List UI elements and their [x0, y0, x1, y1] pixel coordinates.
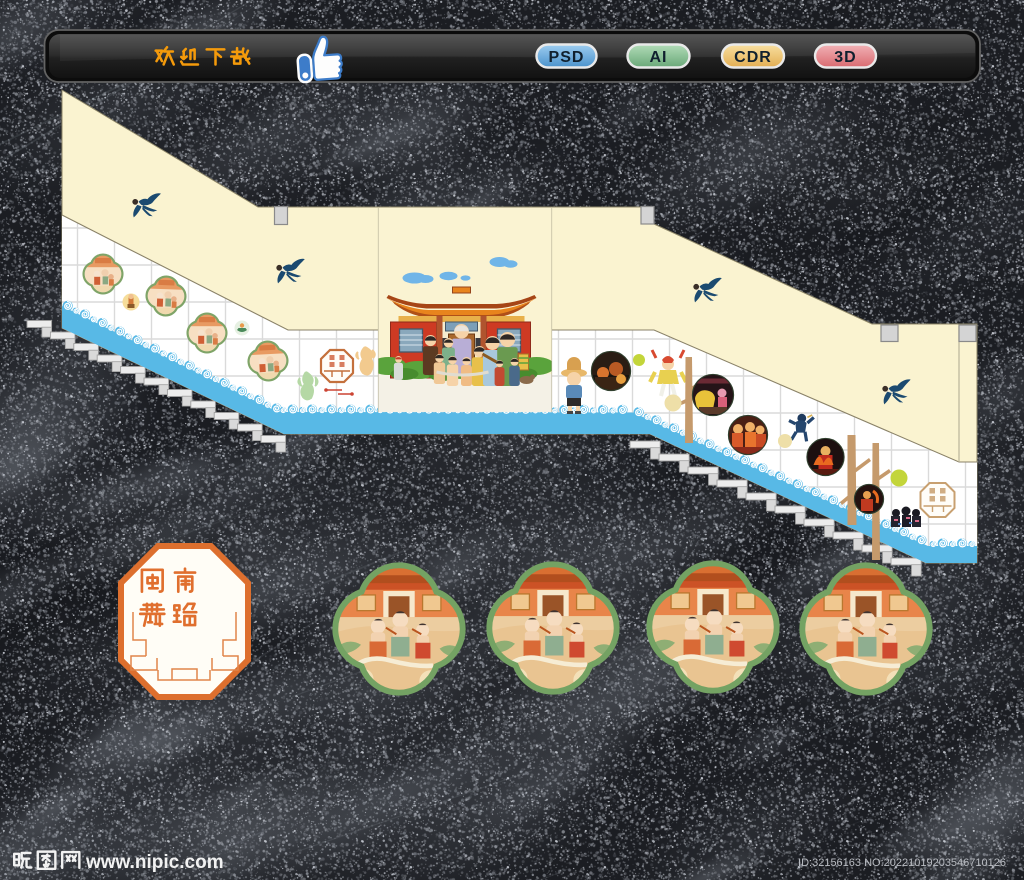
svg-text:3D: 3D: [834, 49, 856, 66]
svg-text:PSD: PSD: [549, 49, 585, 66]
svg-text:CDR: CDR: [734, 49, 772, 66]
svg-text:ID:32156163 NO:202210192035467: ID:32156163 NO:20221019203546710126: [798, 857, 1006, 869]
svg-text:www.nipic.com: www.nipic.com: [85, 852, 224, 873]
svg-text:AI: AI: [650, 49, 668, 66]
